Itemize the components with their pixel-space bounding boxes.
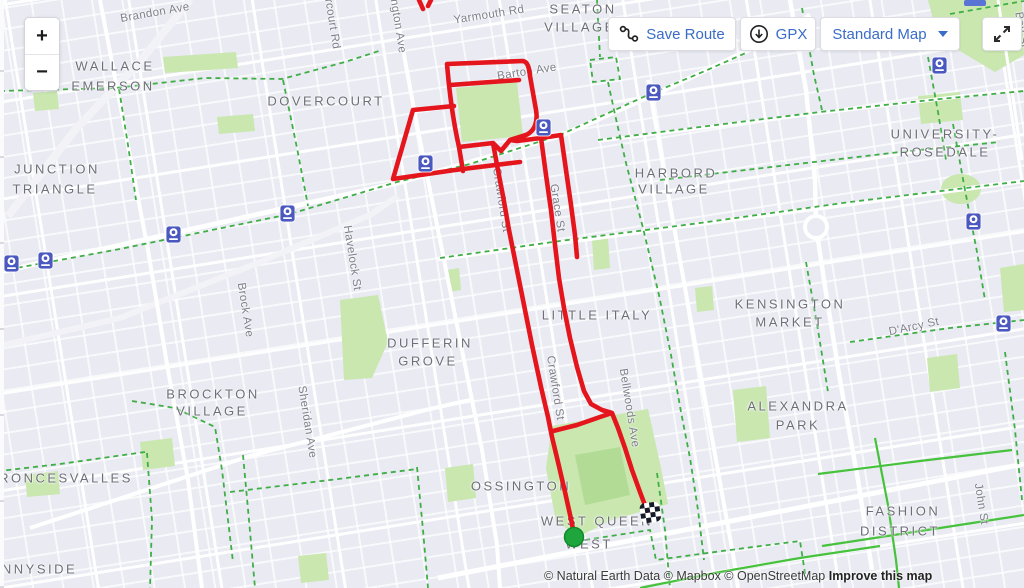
left-edge-strip (0, 0, 4, 588)
transit-station-icon (932, 57, 947, 74)
fullscreen-icon (992, 24, 1012, 44)
station-glyph (938, 61, 942, 65)
station-glyph (542, 123, 546, 127)
station-glyph (972, 217, 976, 221)
improve-map-link[interactable]: Improve this map (829, 569, 933, 583)
checker-cell (646, 517, 652, 523)
station-glyph (286, 209, 290, 213)
transit-station-icon (646, 84, 661, 101)
transit-station-icon (38, 252, 53, 269)
checker (639, 501, 662, 524)
checker-cell (651, 517, 657, 523)
route-icon (619, 25, 639, 43)
checker-cell (644, 503, 650, 509)
attribution: © Natural Earth Data © Mapbox © OpenStre… (544, 569, 932, 583)
checker-cell (640, 513, 646, 519)
station-glyph (652, 88, 656, 92)
save-route-label: Save Route (646, 26, 724, 43)
transit-station-icon (418, 155, 433, 172)
checker-cell (655, 506, 661, 512)
gpx-download-button[interactable]: GPX (740, 17, 816, 51)
checker-cell (645, 508, 651, 514)
transit-station-icon (966, 213, 981, 230)
attribution-text: © Natural Earth Data © Mapbox © OpenStre… (544, 569, 829, 583)
gpx-label: GPX (776, 26, 808, 43)
checker-cell (655, 511, 661, 517)
zoom-out-button[interactable]: − (25, 55, 59, 91)
station-glyph (649, 96, 658, 98)
station-glyph (424, 159, 428, 163)
station-glyph (41, 264, 50, 266)
station-glyph (169, 238, 178, 240)
transit-station-icon (4, 255, 19, 272)
checker-cell (640, 508, 646, 514)
checker-cell (645, 513, 651, 519)
transit-station-icon (536, 119, 551, 136)
checker-cell (650, 512, 656, 518)
route-path[interactable] (393, 0, 649, 534)
route-layer (0, 0, 1024, 588)
zoom-control: + − (24, 17, 60, 91)
checker-cell (649, 502, 655, 508)
checker-cell (641, 518, 647, 524)
transit-station-icon (280, 205, 295, 222)
chevron-down-icon (938, 31, 948, 37)
station-glyph (283, 217, 292, 219)
fullscreen-button[interactable] (982, 17, 1022, 51)
transit-station-icon (166, 226, 181, 243)
zoom-in-button[interactable]: + (25, 18, 59, 54)
transit-station-icon (996, 315, 1011, 332)
map-style-dropdown[interactable]: Standard Map (820, 17, 960, 51)
station-glyph (7, 267, 16, 269)
checker-cell (656, 516, 662, 522)
station-glyph (1002, 319, 1006, 323)
station-glyph (969, 225, 978, 227)
station-glyph (935, 69, 944, 71)
map-canvas[interactable]: SEATONVILLAGEWALLACEEMERSONDOVERCOURTJUN… (0, 0, 1024, 588)
station-glyph (421, 167, 430, 169)
map-style-label: Standard Map (832, 26, 926, 43)
download-icon (749, 24, 769, 44)
checker-cell (639, 503, 645, 509)
station-glyph (10, 259, 14, 263)
route-finish-marker[interactable] (639, 501, 662, 524)
checker-cell (654, 501, 660, 507)
station-glyph (172, 230, 176, 234)
station-glyph (999, 327, 1008, 329)
station-glyph (44, 256, 48, 260)
route-start-marker[interactable] (565, 528, 584, 547)
station-glyph (539, 131, 548, 133)
checker-cell (650, 507, 656, 513)
save-route-button[interactable]: Save Route (608, 17, 736, 51)
